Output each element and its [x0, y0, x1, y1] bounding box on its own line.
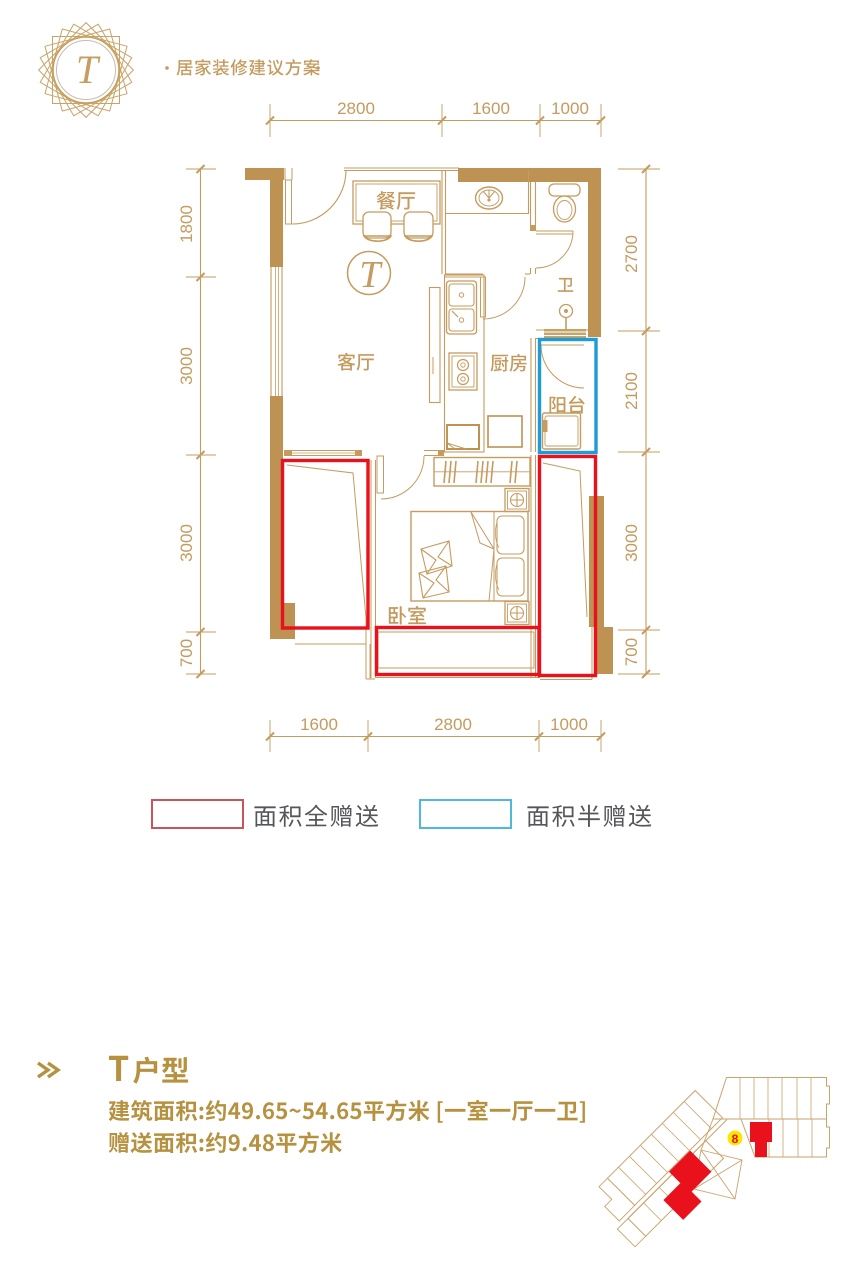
- svg-text:1000: 1000: [550, 715, 588, 734]
- svg-text:2100: 2100: [622, 372, 641, 410]
- svg-text:1600: 1600: [472, 99, 510, 118]
- svg-text:3000: 3000: [622, 524, 641, 562]
- svg-text:2800: 2800: [434, 715, 472, 734]
- svg-text:8: 8: [732, 1132, 739, 1146]
- svg-text:2700: 2700: [622, 235, 641, 273]
- svg-text:700: 700: [622, 638, 641, 666]
- svg-text:1800: 1800: [177, 205, 196, 243]
- svg-text:1600: 1600: [300, 715, 338, 734]
- svg-text:3000: 3000: [177, 347, 196, 385]
- svg-text:700: 700: [177, 639, 196, 667]
- svg-text:1000: 1000: [551, 99, 589, 118]
- svg-text:2800: 2800: [337, 99, 375, 118]
- svg-text:3000: 3000: [177, 524, 196, 562]
- svg-text:T: T: [76, 47, 101, 92]
- svg-text:T: T: [359, 254, 383, 296]
